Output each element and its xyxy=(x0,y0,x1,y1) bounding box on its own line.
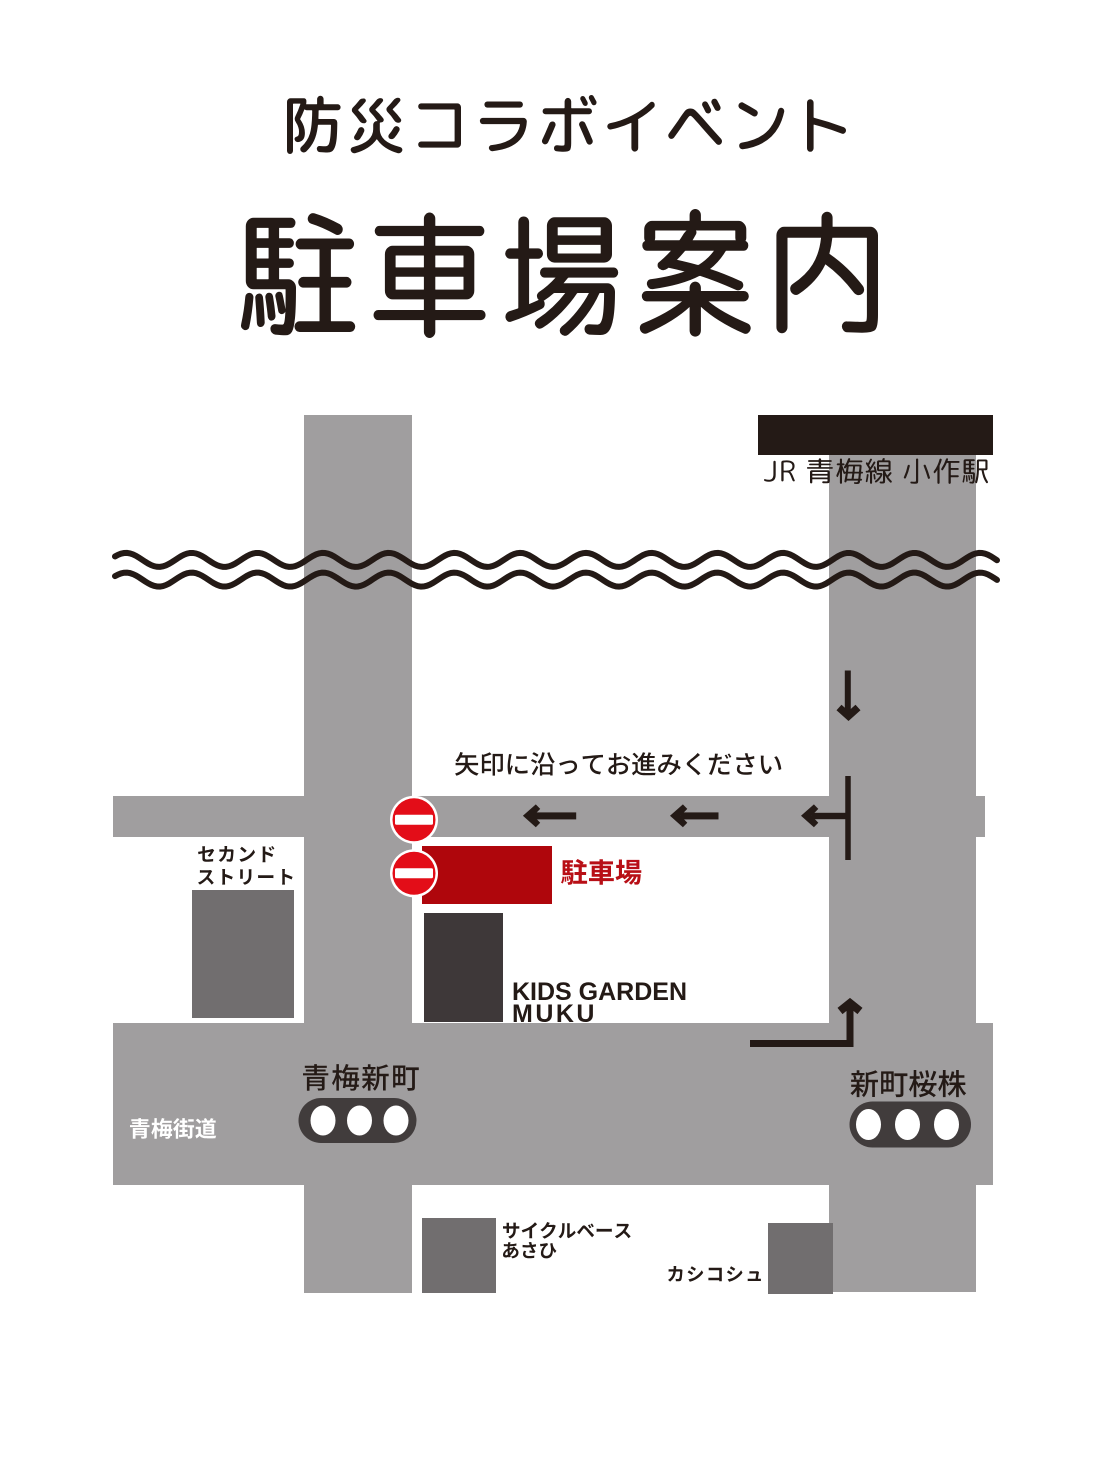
svg-text:MUKU: MUKU xyxy=(512,1000,597,1028)
